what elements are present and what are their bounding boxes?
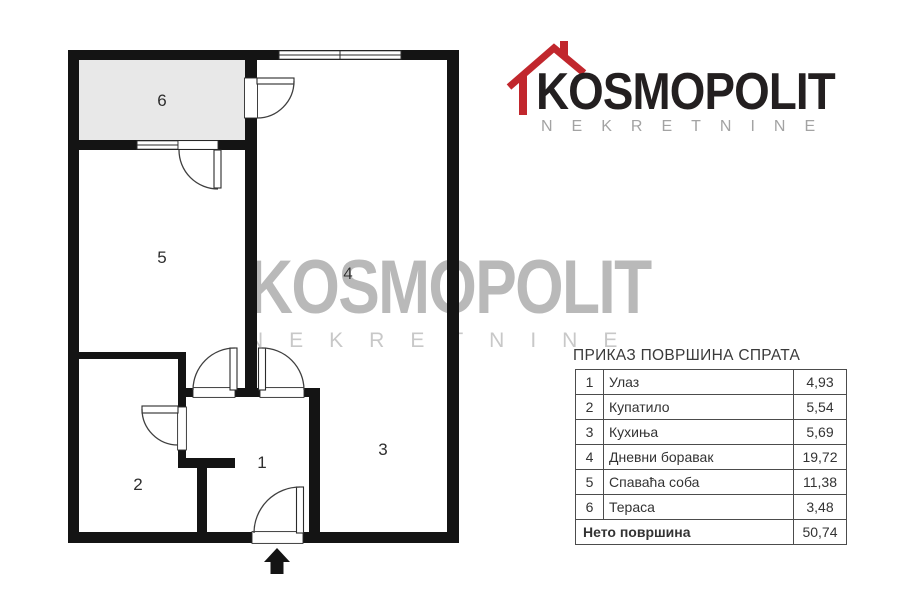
door-leaf-bedroom	[230, 348, 237, 390]
net-area-label: Нето површина	[576, 520, 794, 545]
net-area-value: 50,74	[794, 520, 847, 545]
room-area-cell: 5,54	[794, 395, 847, 420]
room-number-cell: 2	[576, 395, 604, 420]
door-arc-living	[262, 348, 304, 390]
room-area-cell: 3,48	[794, 495, 847, 520]
area-table-title: ПРИКАЗ ПОВРШИНА СПРАТА	[573, 347, 800, 365]
opening-terrace-bedroom	[178, 141, 218, 150]
room-label-3: 3	[378, 440, 387, 459]
table-row: 3 Кухиња 5,69	[576, 420, 847, 445]
door-leaf-entrance	[297, 487, 304, 533]
logo-house-wall	[519, 74, 527, 115]
table-row: 2 Купатило 5,54	[576, 395, 847, 420]
opening-living	[260, 388, 304, 398]
door-arc-terrace-bedroom	[179, 150, 218, 189]
door-leaf-bathroom	[142, 406, 178, 413]
room-name-cell: Кухиња	[604, 420, 794, 445]
room-number-cell: 3	[576, 420, 604, 445]
room-name-cell: Тераса	[604, 495, 794, 520]
room-label-6: 6	[157, 91, 166, 110]
room-label-4: 4	[343, 264, 352, 283]
room-name-cell: Улаз	[604, 370, 794, 395]
logo-tagline-text: NEKRETNINE	[541, 119, 834, 135]
room-area-cell: 4,93	[794, 370, 847, 395]
room-area-cell: 11,38	[794, 470, 847, 495]
room-number-cell: 5	[576, 470, 604, 495]
wall-left	[68, 50, 79, 543]
entrance-arrow-icon	[264, 548, 290, 574]
room-label-5: 5	[157, 248, 166, 267]
room-labels: 1 2 3 4 5 6	[133, 91, 387, 494]
wall-hall-right	[309, 388, 320, 532]
page: 1 2 3 4 5 6 KOSMOPOLIT NEKRETNINE KOSMOP…	[0, 0, 900, 600]
wall-bedroom-bottom	[79, 352, 183, 359]
room-name-cell: Дневни боравак	[604, 445, 794, 470]
door-arc-bedroom	[193, 348, 235, 390]
door-arc-terrace-living	[257, 81, 294, 118]
room-label-2: 2	[133, 475, 142, 494]
table-row: 4 Дневни боравак 19,72	[576, 445, 847, 470]
table-row: 1 Улаз 4,93	[576, 370, 847, 395]
opening-bathroom	[178, 407, 187, 450]
door-leaf-living	[259, 348, 266, 390]
room-number-cell: 1	[576, 370, 604, 395]
wall-stub	[178, 458, 235, 468]
opening-bedroom	[193, 388, 235, 398]
opening-entrance	[252, 532, 303, 544]
room-area-cell: 5,69	[794, 420, 847, 445]
room-name-cell: Спаваћа соба	[604, 470, 794, 495]
door-arc-bathroom	[142, 409, 178, 445]
area-table: 1 Улаз 4,93 2 Купатило 5,54 3 Кухиња 5,6…	[575, 369, 847, 545]
wall-bath-lower	[197, 468, 207, 532]
door-leaf-terrace-living	[257, 78, 294, 84]
door-leaf-terrace-bedroom	[214, 150, 221, 188]
room-name-cell: Купатило	[604, 395, 794, 420]
door-arc-entrance	[254, 487, 300, 533]
wall-right	[447, 50, 459, 543]
room-area-cell: 19,72	[794, 445, 847, 470]
table-footer-row: Нето површина 50,74	[576, 520, 847, 545]
table-row: 6 Тераса 3,48	[576, 495, 847, 520]
room-label-1: 1	[257, 453, 266, 472]
table-row: 5 Спаваћа соба 11,38	[576, 470, 847, 495]
room-number-cell: 4	[576, 445, 604, 470]
opening-terrace-living	[245, 78, 258, 118]
logo-brand-text: KOSMOPOLIT	[536, 66, 835, 118]
room-number-cell: 6	[576, 495, 604, 520]
